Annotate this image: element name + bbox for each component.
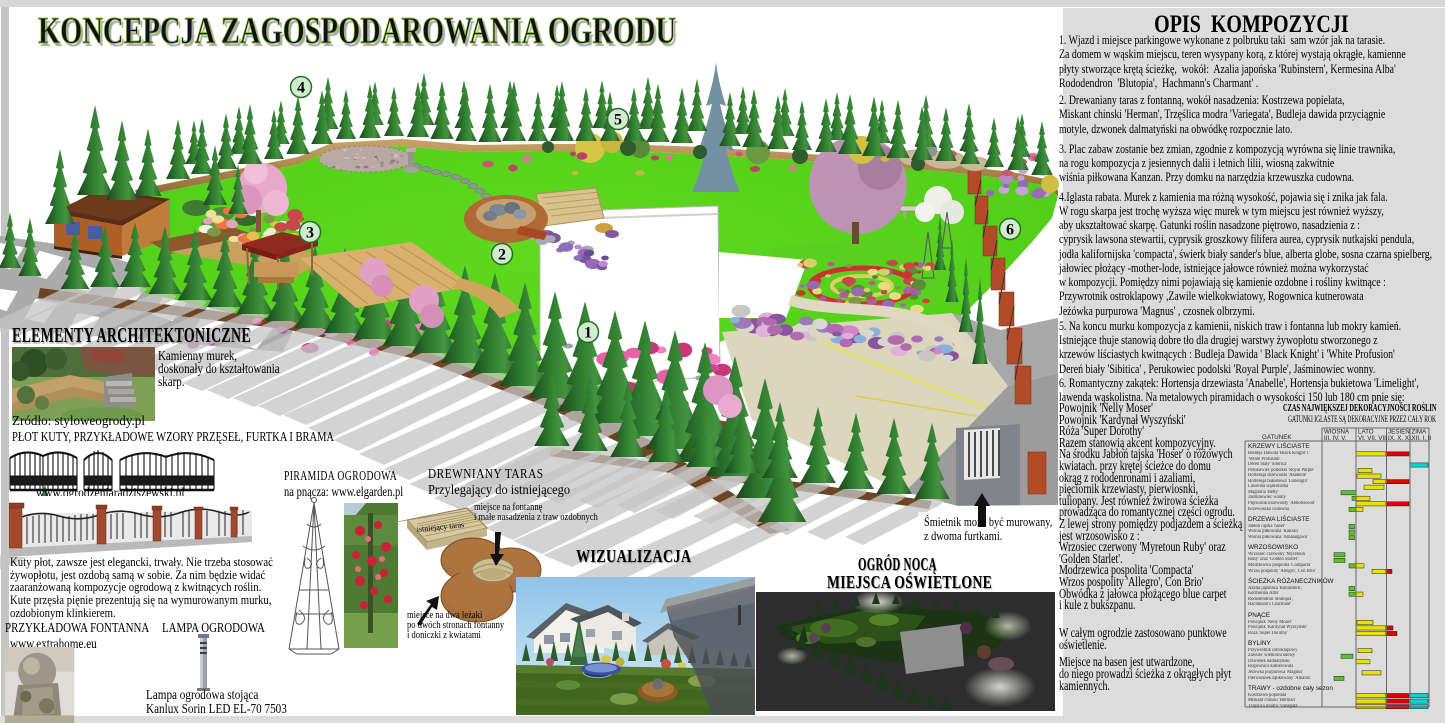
svg-text:GATUNEK: GATUNEK — [1262, 434, 1292, 441]
svg-text:VI. VII. VIII.: VI. VII. VIII. — [1358, 435, 1390, 442]
svg-text:XII. I. II: XII. I. II — [1412, 435, 1432, 442]
svg-text:IX. X. XI.: IX. X. XI. — [1388, 435, 1413, 442]
svg-text:III. IV. V.: III. IV. V. — [1324, 435, 1347, 442]
